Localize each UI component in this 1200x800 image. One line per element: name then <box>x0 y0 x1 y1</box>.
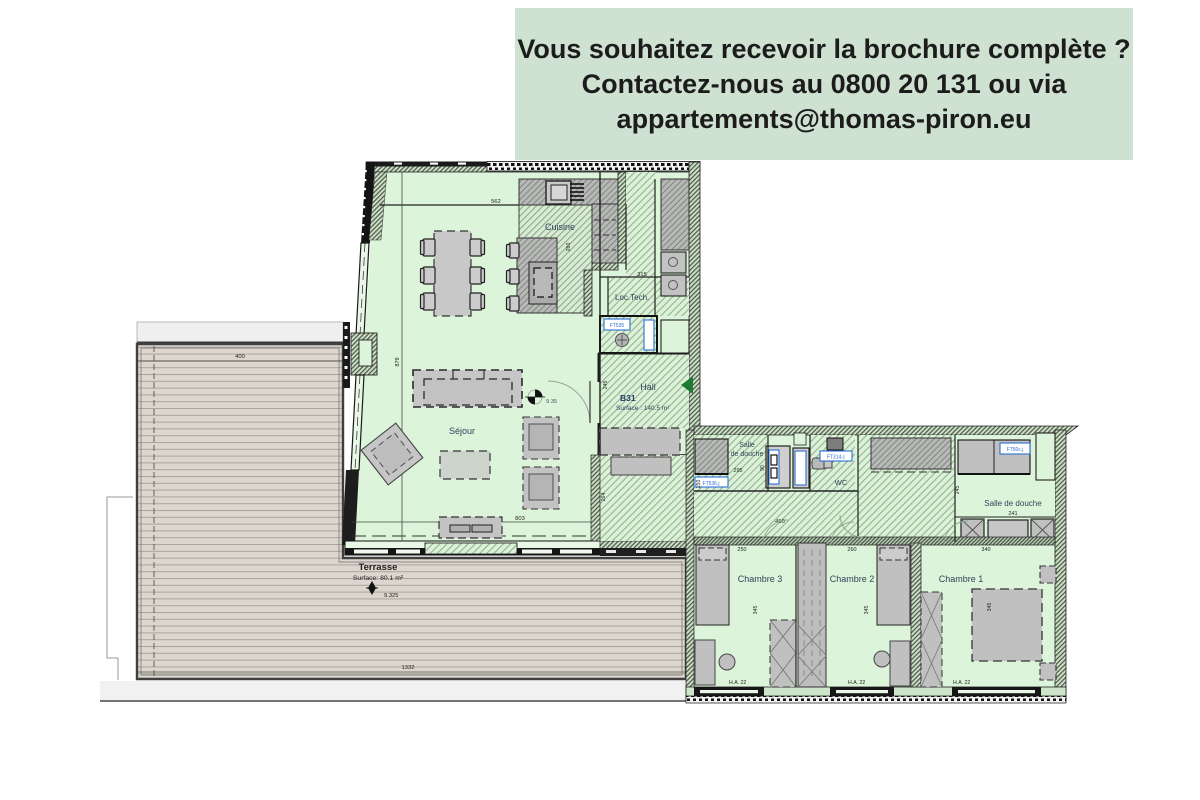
svg-text:Chambre 3: Chambre 3 <box>738 574 783 584</box>
svg-text:295: 295 <box>733 468 742 474</box>
svg-text:Hall: Hall <box>640 382 656 392</box>
svg-text:150: 150 <box>696 480 702 489</box>
svg-text:FT535: FT535 <box>610 323 625 329</box>
svg-text:264: 264 <box>601 493 607 502</box>
svg-text:H.A. 22: H.A. 22 <box>729 680 746 686</box>
svg-text:Surface: 80.1 m²: Surface: 80.1 m² <box>353 575 404 582</box>
svg-text:879: 879 <box>395 357 401 366</box>
svg-text:260: 260 <box>847 547 856 553</box>
svg-text:9.35: 9.35 <box>546 399 557 405</box>
svg-text:250: 250 <box>737 547 746 553</box>
svg-text:FT50c.j: FT50c.j <box>1007 447 1024 453</box>
svg-text:803: 803 <box>515 516 525 522</box>
svg-text:Chambre 2: Chambre 2 <box>830 574 875 584</box>
svg-text:245: 245 <box>603 381 609 390</box>
svg-text:450: 450 <box>775 519 785 525</box>
svg-text:Surface : 140.5 m²: Surface : 140.5 m² <box>616 405 670 412</box>
svg-text:Cuisine: Cuisine <box>545 222 575 232</box>
svg-text:B31: B31 <box>620 393 636 403</box>
svg-text:Chambre 1: Chambre 1 <box>939 574 984 584</box>
svg-text:345: 345 <box>987 603 993 612</box>
svg-text:345: 345 <box>753 606 759 615</box>
svg-text:245: 245 <box>955 486 961 495</box>
svg-text:241: 241 <box>1008 511 1017 517</box>
svg-text:de douche: de douche <box>731 451 764 458</box>
svg-text:400: 400 <box>235 354 245 360</box>
svg-text:Séjour: Séjour <box>449 426 475 436</box>
svg-text:Terrasse: Terrasse <box>359 562 398 573</box>
svg-text:FT536.j: FT536.j <box>703 481 720 487</box>
svg-text:Loc.Tech.: Loc.Tech. <box>615 293 649 302</box>
svg-text:90: 90 <box>760 465 766 471</box>
svg-text:562: 562 <box>491 199 501 205</box>
svg-text:H.A. 22: H.A. 22 <box>953 680 970 686</box>
svg-text:WC: WC <box>835 478 848 487</box>
svg-text:260: 260 <box>566 243 572 252</box>
svg-text:H.A. 22: H.A. 22 <box>848 680 865 686</box>
svg-text:9.325: 9.325 <box>384 593 399 599</box>
svg-text:340: 340 <box>981 547 990 553</box>
svg-text:Salle de douche: Salle de douche <box>984 499 1042 508</box>
svg-text:345: 345 <box>864 606 870 615</box>
svg-text:Salle: Salle <box>739 442 755 449</box>
svg-text:FT314.c: FT314.c <box>827 455 846 461</box>
svg-text:1332: 1332 <box>402 665 415 671</box>
